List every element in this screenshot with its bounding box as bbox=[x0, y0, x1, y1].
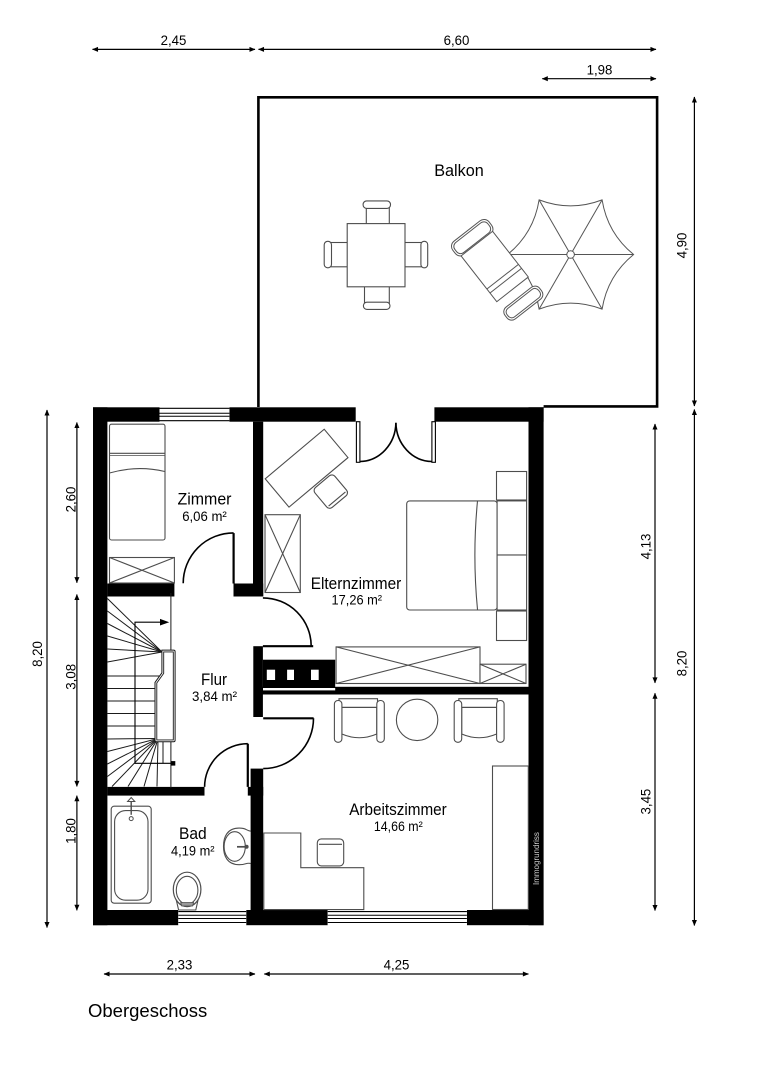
svg-text:4,90: 4,90 bbox=[674, 232, 690, 258]
svg-text:6,06 m²: 6,06 m² bbox=[182, 509, 227, 524]
svg-text:Obergeschoss: Obergeschoss bbox=[88, 1000, 207, 1021]
svg-text:4,13: 4,13 bbox=[637, 533, 653, 559]
svg-text:Balkon: Balkon bbox=[434, 162, 484, 180]
svg-text:2,60: 2,60 bbox=[62, 486, 78, 512]
svg-text:Bad: Bad bbox=[179, 825, 207, 843]
svg-text:4,19 m²: 4,19 m² bbox=[171, 844, 215, 859]
svg-text:8,20: 8,20 bbox=[673, 650, 689, 676]
svg-text:Flur: Flur bbox=[201, 671, 228, 689]
svg-text:17,26 m²: 17,26 m² bbox=[332, 592, 383, 607]
svg-text:4,25: 4,25 bbox=[384, 957, 410, 973]
svg-text:Immogrundriss: Immogrundriss bbox=[532, 832, 541, 885]
svg-text:Arbeitszimmer: Arbeitszimmer bbox=[349, 801, 447, 819]
svg-text:Elternzimmer: Elternzimmer bbox=[311, 575, 402, 593]
svg-text:3,08: 3,08 bbox=[62, 664, 78, 690]
svg-text:6,60: 6,60 bbox=[444, 32, 470, 48]
svg-text:1,98: 1,98 bbox=[587, 62, 613, 78]
svg-text:2,45: 2,45 bbox=[161, 32, 187, 48]
svg-text:14,66 m²: 14,66 m² bbox=[374, 819, 423, 834]
svg-text:8,20: 8,20 bbox=[29, 641, 45, 667]
svg-text:3,84 m²: 3,84 m² bbox=[192, 689, 238, 704]
svg-text:2,33: 2,33 bbox=[167, 957, 193, 973]
svg-text:Zimmer: Zimmer bbox=[178, 491, 233, 509]
svg-text:1,80: 1,80 bbox=[62, 818, 78, 844]
svg-text:3,45: 3,45 bbox=[637, 788, 653, 814]
